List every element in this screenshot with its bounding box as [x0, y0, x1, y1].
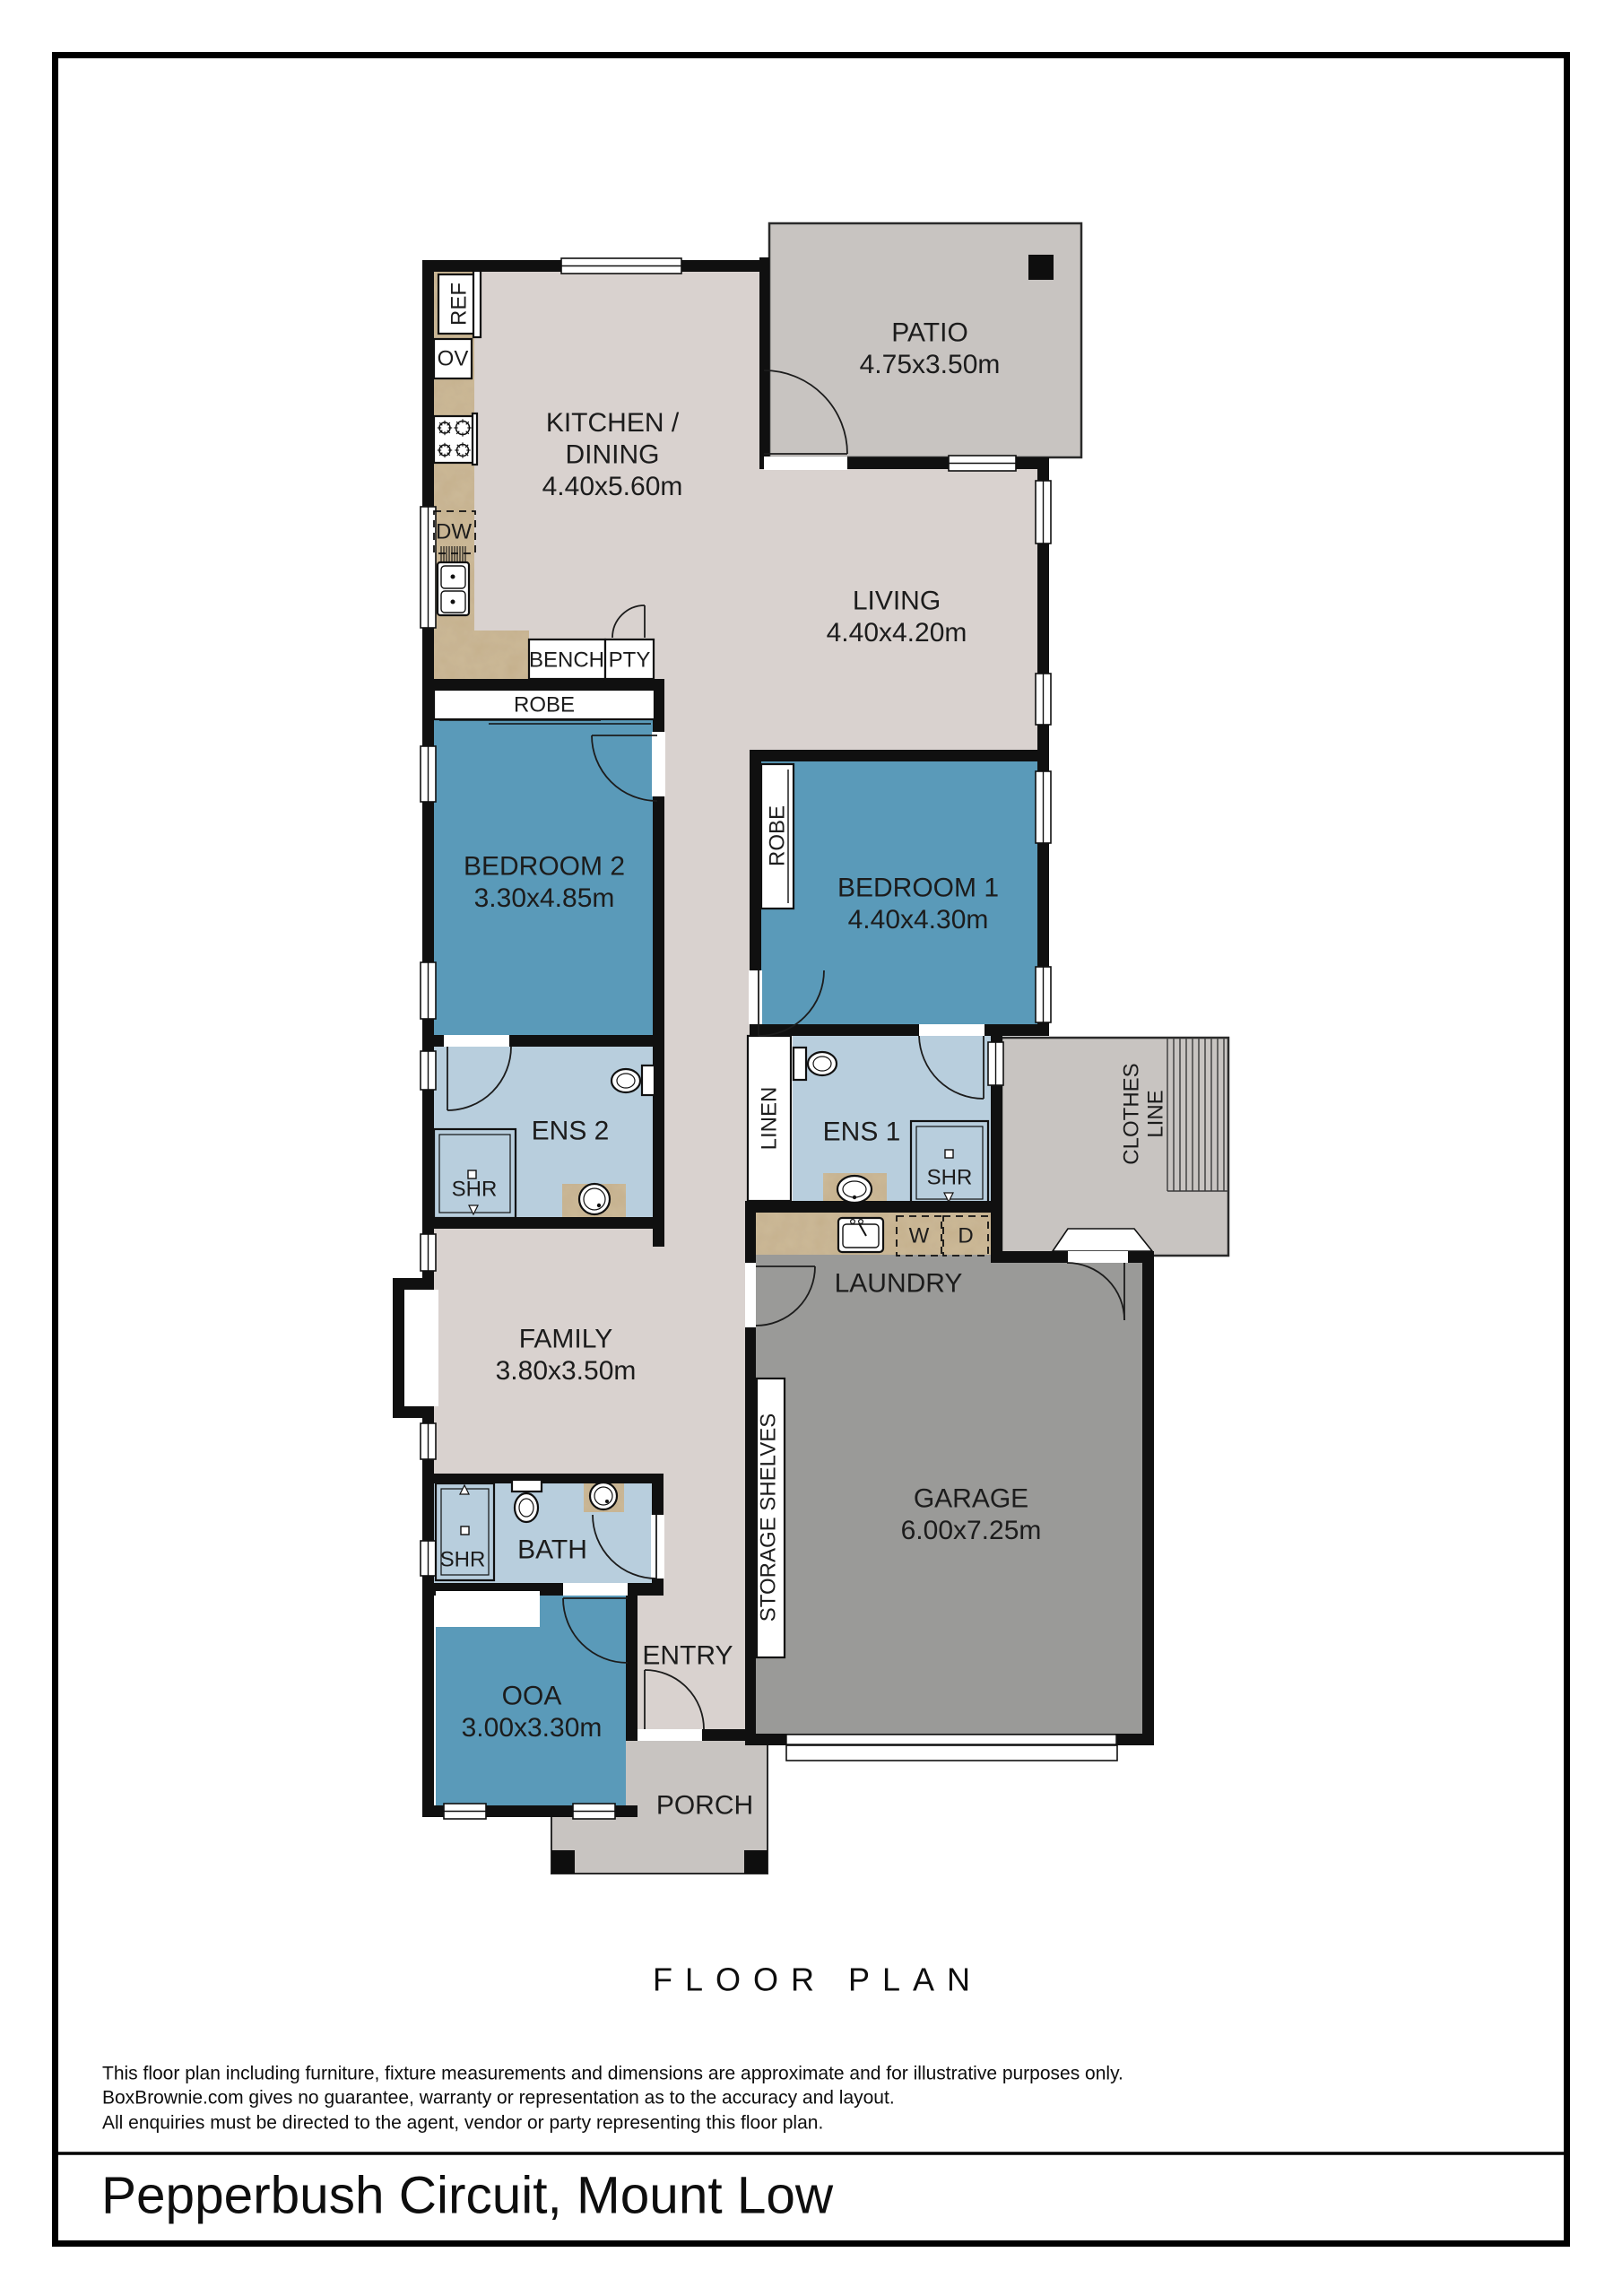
svg-text:DINING: DINING	[566, 440, 660, 470]
svg-text:STORAGE SHELVES: STORAGE SHELVES	[757, 1413, 781, 1622]
svg-text:4.40x4.20m: 4.40x4.20m	[827, 618, 967, 648]
svg-text:PTY: PTY	[609, 648, 651, 673]
svg-text:3.80x3.50m: 3.80x3.50m	[496, 1356, 637, 1386]
svg-text:All enquiries must be directed: All enquiries must be directed to the ag…	[102, 2113, 823, 2134]
svg-text:ENS 2: ENS 2	[532, 1117, 610, 1146]
svg-text:3.30x4.85m: 3.30x4.85m	[474, 883, 615, 913]
svg-text:OOA: OOA	[502, 1682, 562, 1711]
svg-text:6.00x7.25m: 6.00x7.25m	[901, 1516, 1042, 1545]
svg-text:KITCHEN /: KITCHEN /	[546, 408, 680, 438]
svg-text:PATIO: PATIO	[891, 318, 968, 348]
svg-text:4.40x4.30m: 4.40x4.30m	[848, 905, 989, 935]
svg-text:D: D	[958, 1224, 973, 1248]
svg-text:BEDROOM 2: BEDROOM 2	[464, 852, 625, 882]
svg-text:FLOOR PLAN: FLOOR PLAN	[653, 1961, 983, 1998]
svg-text:LINE: LINE	[1144, 1090, 1168, 1137]
svg-text:BENCH: BENCH	[529, 648, 604, 673]
svg-text:FAMILY: FAMILY	[519, 1325, 612, 1354]
svg-text:PORCH: PORCH	[656, 1791, 753, 1821]
svg-text:SHR: SHR	[440, 1548, 486, 1572]
svg-text:ENTRY: ENTRY	[642, 1641, 733, 1671]
svg-text:ENS 1: ENS 1	[823, 1118, 901, 1147]
svg-text:CLOTHES: CLOTHES	[1120, 1063, 1144, 1164]
svg-text:SHR: SHR	[452, 1178, 498, 1202]
svg-text:3.00x3.30m: 3.00x3.30m	[462, 1713, 603, 1743]
svg-text:GARAGE: GARAGE	[914, 1484, 1028, 1514]
svg-text:BEDROOM 1: BEDROOM 1	[837, 874, 999, 903]
svg-text:BoxBrownie.com gives no guaran: BoxBrownie.com gives no guarantee, warra…	[102, 2088, 895, 2109]
svg-text:SHR: SHR	[927, 1166, 973, 1190]
svg-text:LIVING: LIVING	[853, 587, 941, 616]
svg-text:W: W	[909, 1224, 930, 1248]
svg-text:REF: REF	[447, 283, 472, 326]
svg-text:This floor plan including furn: This floor plan including furniture, fix…	[102, 2064, 1123, 2084]
svg-text:4.40x5.60m: 4.40x5.60m	[542, 472, 683, 501]
svg-text:BATH: BATH	[517, 1535, 587, 1565]
svg-text:DW: DW	[436, 520, 472, 544]
svg-text:Pepperbush Circuit, Mount Low: Pepperbush Circuit, Mount Low	[101, 2167, 834, 2225]
svg-text:ROBE: ROBE	[514, 693, 575, 717]
svg-text:ROBE: ROBE	[766, 805, 790, 866]
svg-text:LAUNDRY: LAUNDRY	[835, 1269, 963, 1299]
svg-text:OV: OV	[438, 347, 469, 371]
svg-text:LINEN: LINEN	[758, 1087, 782, 1151]
svg-text:4.75x3.50m: 4.75x3.50m	[860, 350, 1001, 379]
